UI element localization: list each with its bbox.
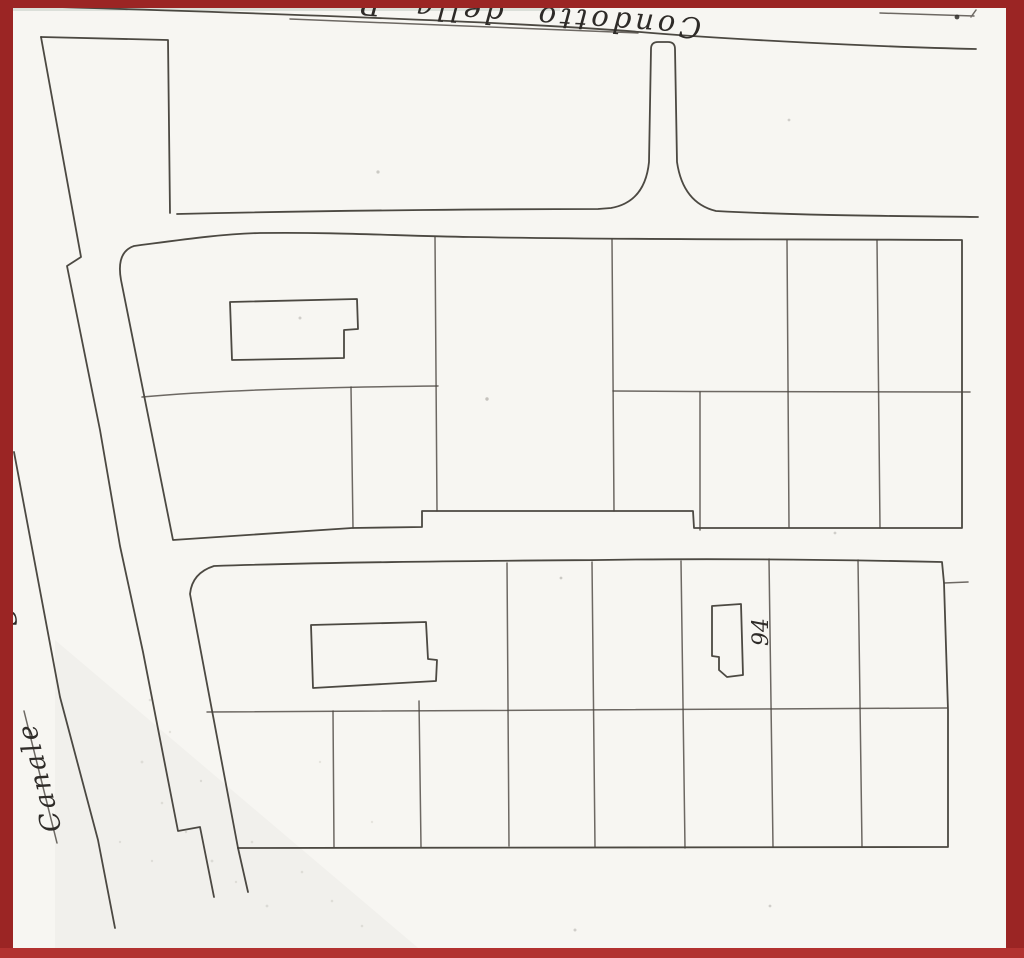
boundary-stub — [944, 582, 968, 583]
scan-border-bottom — [0, 948, 1024, 958]
scanned-map-page: Condotto della P Canale 94 S — [0, 0, 1024, 958]
scan-border-right — [1006, 0, 1024, 958]
parcel-94-label: 94 — [749, 618, 774, 646]
scan-border-left — [0, 0, 13, 958]
parcel-divider — [333, 711, 334, 847]
ink-blob — [955, 15, 960, 20]
scan-border-top — [0, 0, 1024, 8]
map-canvas: Condotto della P Canale 94 S — [0, 0, 1024, 958]
